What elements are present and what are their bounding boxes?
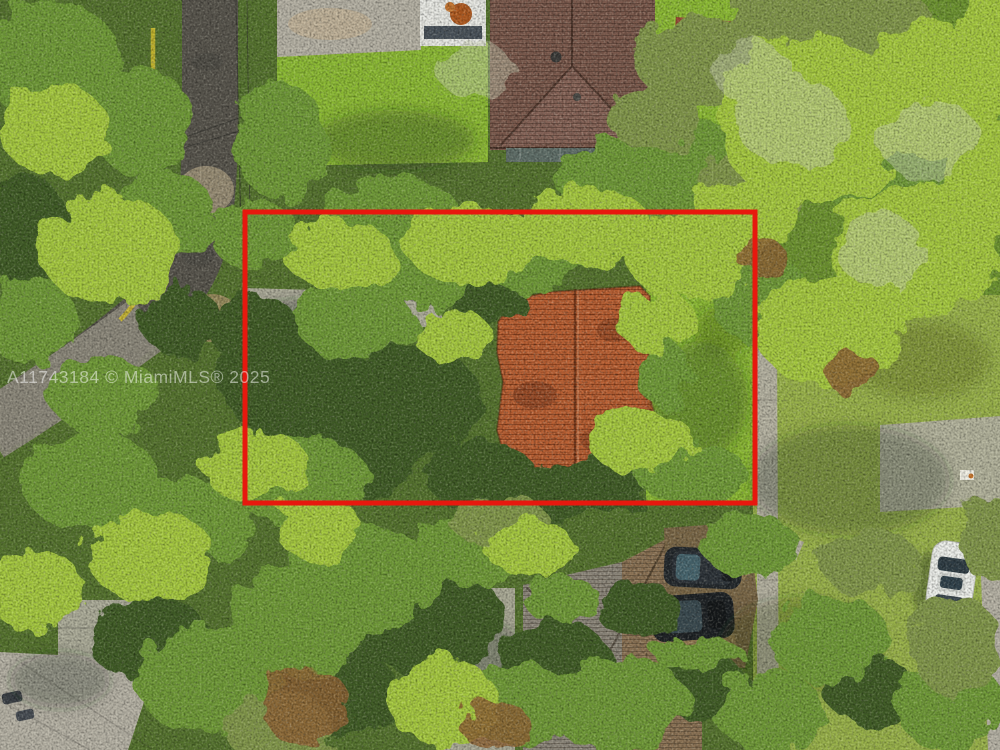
aerial-photo: A11743184 © MiamiMLS® 2025 <box>0 0 1000 750</box>
mls-watermark: A11743184 © MiamiMLS® 2025 <box>7 367 270 387</box>
